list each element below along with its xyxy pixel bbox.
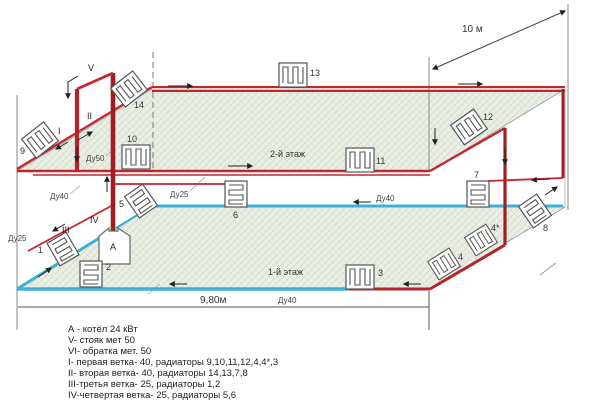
floor1-label: 1-й этаж — [268, 267, 303, 277]
floor2-label: 2-й этаж — [270, 149, 305, 159]
radiator-7 — [467, 181, 489, 207]
radiator-10-label: 10 — [127, 134, 137, 144]
radiator-3 — [346, 265, 374, 289]
heating-scheme-diagram: А 10 м — [0, 0, 600, 400]
radiator-3-label: 3 — [378, 268, 383, 278]
radiator-4s-label: 4* — [491, 223, 500, 233]
legend-line: V- стояк мет 50 — [68, 335, 135, 346]
pipe-du25-mid: Ду25 — [170, 190, 189, 199]
radiator-6-label: 6 — [233, 210, 238, 220]
pipe-du25-left: Ду25 — [8, 234, 27, 243]
legend-line: VI- обратка мет. 50 — [68, 346, 151, 357]
flow-arrow — [545, 187, 557, 195]
boiler-label: А — [110, 242, 116, 252]
radiator-2-label: 2 — [106, 262, 111, 272]
branch-v-label: V — [88, 63, 94, 73]
legend-line: IV-четвертая ветка- 25, радиаторы 5,6 — [68, 390, 236, 400]
branch-iv-label: IV — [90, 215, 99, 225]
radiator-11 — [346, 148, 374, 172]
legend-line: III-третья ветка- 25, радиаторы 1,2 — [68, 379, 220, 390]
branch-iii-label: III — [62, 225, 70, 235]
leader-du40-left — [70, 186, 80, 194]
radiator-4-label: 4 — [458, 252, 463, 262]
dim-width-label: 9,80м — [200, 295, 226, 306]
radiator-10 — [122, 145, 150, 169]
branch2-bottom-run — [488, 178, 563, 181]
radiator-14-label: 14 — [134, 100, 144, 110]
radiator-1-label: 1 — [38, 245, 43, 255]
legend-line: I- первая ветка- 40, радиаторы 9,10,11,1… — [68, 357, 278, 368]
branch-i-label: I — [58, 126, 61, 136]
radiator-5-label: 5 — [119, 199, 124, 209]
radiator-2 — [80, 261, 102, 287]
legend-line: А - котёл 24 кВт — [68, 324, 138, 335]
legend-line: II- вторая ветка- 40, радиаторы 14,13,7,… — [68, 368, 248, 379]
riser-loop-top — [77, 73, 113, 89]
branch-ii-label: II — [87, 111, 92, 121]
pipe-du40-left: Ду40 — [50, 192, 69, 201]
radiator-7-label: 7 — [474, 170, 479, 180]
radiator-11-label: 11 — [376, 156, 385, 166]
diagram-canvas: А 10 м — [0, 0, 600, 400]
pipe-du40-bottom: Ду40 — [278, 296, 297, 305]
radiator-8-label: 8 — [543, 223, 548, 233]
pipe-du40-mid: Ду40 — [376, 194, 395, 203]
legend: А - котёл 24 кВт V- стояк мет 50 VI- обр… — [68, 324, 278, 400]
radiator-6 — [225, 181, 247, 207]
boiler: А — [99, 228, 130, 264]
radiator-13 — [279, 63, 307, 87]
dimension-line-depth — [433, 11, 565, 69]
pencil-mark — [540, 263, 556, 275]
radiator-13-label: 13 — [310, 68, 320, 78]
pipe-du50: Ду50 — [86, 154, 105, 163]
radiator-12-label: 12 — [483, 112, 493, 122]
dim-depth-label: 10 м — [462, 24, 483, 35]
radiator-9-label: 9 — [20, 146, 25, 156]
